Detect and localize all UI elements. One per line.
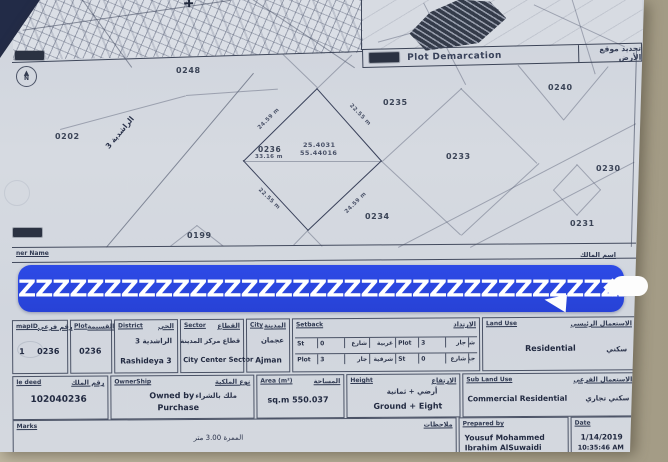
setback-cell: Setbackالارتداد St 0 شارع غربية Plot 3 ج… (292, 317, 480, 372)
date-time-partial: 10:35:46 AM (578, 443, 624, 451)
setback-row: St 0 شارع غربية Plot 3 جار شمالية (295, 336, 477, 348)
district-cell: Districtالحي الراشدية 3 Rashideya 3 (114, 319, 178, 373)
prepared-by-name2: Ibrahim AlSuwaidi (465, 443, 542, 452)
sub-land-use-value-ar: سكني تجاري (585, 394, 629, 402)
owner-name-redaction-banner: ZZZZZZZZZZZZZZZZZZZZZZZZZZZZZZZZZZZZZ (18, 265, 624, 312)
prepared-by-name1: Yousuf Mohammed (465, 433, 545, 442)
ownership-value-en1: Owned by (149, 391, 194, 400)
prepared-by-cell: Prepared by Yousuf Mohammed Ibrahim AlSu… (459, 417, 569, 460)
sector-value-en: City Center Sector (183, 356, 253, 364)
height-value-en: Ground + Eight (373, 401, 442, 410)
area-value: sq.m 550.037 (267, 395, 328, 404)
annotation-blob (612, 276, 648, 296)
city-value-en: Ajman (255, 355, 282, 364)
ownership-value-ar: ملك بالشراء (195, 392, 237, 400)
sector-value-ar: قطاع مركز المدينة (180, 337, 240, 345)
sub-land-use-value-en: Commercial Residential (467, 394, 567, 404)
plot-cell: Plotالقسيمة 0236 (70, 319, 112, 373)
deed-value: 102040236 (30, 395, 86, 405)
remarks-note: الممرة 3.00 متر (194, 434, 244, 442)
mapid-cell: mapIDرقم فرعي 1 0236 (12, 320, 68, 374)
city-cell: Cityالمدينة عجمان Ajman (246, 318, 290, 372)
details-table: mapIDرقم فرعي 1 0236 Plotالقسيمة 0236 Di… (0, 0, 668, 452)
sub-land-use-cell: Sub Land Useالاستعمال الفرعي Commercial … (462, 372, 636, 417)
date-value: 1/14/2019 (581, 432, 623, 441)
remarks-cell: Marksملاحظات الممرة 3.00 متر (13, 417, 457, 462)
ownership-cell: OwnerShipنوع الملكية Owned by ملك بالشرا… (110, 375, 254, 420)
land-use-value-en: Residential (525, 344, 576, 353)
city-value-ar: عجمان (261, 336, 284, 344)
plot-value: 0236 (79, 347, 101, 356)
redaction-text: ZZZZZZZZZZZZZZZZZZZZZZZZZZZZZZZZZZZZZ (18, 275, 624, 302)
land-use-value-ar: سكني (606, 345, 627, 353)
document-photo: Plot Demarcation تحديد موقع الأرض ▲ N 02… (0, 0, 668, 452)
district-value-ar: الراشدية 3 (135, 337, 172, 345)
date-cell: Date 1/14/2019 10:35:46 AM (571, 416, 639, 458)
deed-cell: le deedرقم الملك 102040236 (12, 376, 108, 421)
ownership-value-en2: Purchase (157, 403, 199, 412)
mapid-value2: 0236 (37, 347, 59, 356)
district-value-en: Rashideya 3 (120, 356, 172, 365)
land-use-cell: Land Useالاستعمال الرئيسي Residential سك… (482, 316, 636, 371)
height-value-ar: أرضي + ثمانية (387, 388, 438, 396)
height-cell: Heightالارتفاع أرضي + ثمانية Ground + Ei… (346, 373, 460, 418)
mapid-value1: 1 (19, 347, 25, 356)
sector-cell: Sectorالقطاع قطاع مركز المدينة City Cent… (180, 319, 244, 373)
document-paper: Plot Demarcation تحديد موقع الأرض ▲ N 02… (0, 0, 648, 452)
area-cell: Area (m²)المساحة sq.m 550.037 (256, 374, 344, 419)
setback-row: Plot 3 جار شرقية St 0 شارع جنوبية (295, 352, 477, 364)
